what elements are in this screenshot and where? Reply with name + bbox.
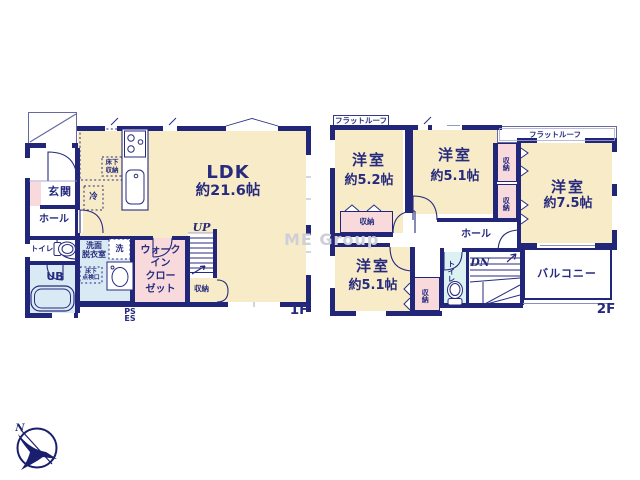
- wall: [440, 303, 523, 308]
- wall: [437, 218, 497, 222]
- toilet2-label: トイレ: [446, 255, 455, 287]
- wall: [25, 236, 80, 240]
- wall: [25, 261, 78, 265]
- wall: [517, 143, 521, 248]
- closet-a-label: 収納: [350, 218, 384, 227]
- wall: [440, 248, 444, 305]
- wall: [40, 205, 78, 209]
- wall: [330, 311, 442, 316]
- balcony-label: バルコニー: [532, 268, 602, 281]
- floor1-label: 1F: [286, 303, 312, 319]
- window: [25, 158, 30, 178]
- closet-c-label: 収納: [502, 192, 510, 216]
- bedroom75-name: 洋室: [544, 179, 592, 197]
- wall: [410, 247, 415, 311]
- bedroom51a-size: 約5.1帖: [422, 169, 488, 184]
- hatch-line2: 点検口: [80, 275, 102, 282]
- wic-line4: ゼット: [136, 283, 185, 296]
- window: [226, 126, 278, 131]
- window: [228, 302, 280, 307]
- window: [612, 196, 617, 230]
- wic-label: ウォーク イン クロー ゼット: [136, 244, 185, 296]
- vent-window: [105, 126, 117, 131]
- window: [330, 256, 335, 288]
- bedroom51a-name: 洋室: [424, 147, 486, 165]
- ufs-line2: 収納: [103, 167, 121, 175]
- wic-line3: クロー: [136, 270, 185, 283]
- bedroom51b-size: 約5.1帖: [342, 278, 404, 293]
- wall: [520, 248, 524, 305]
- ldk-size: 約21.6帖: [178, 183, 278, 200]
- wall: [78, 236, 135, 240]
- porch: [28, 112, 77, 144]
- washroom-label: 洗面 脱衣室: [79, 241, 109, 260]
- ub-label: UB: [40, 271, 70, 284]
- balcony-door: [537, 243, 595, 248]
- washroom-line2: 脱衣室: [79, 250, 109, 259]
- entrance-opening: [46, 143, 72, 148]
- bedroom52-name: 洋室: [340, 152, 398, 170]
- underfloor-storage-label: 床下 収納: [103, 159, 121, 174]
- fridge-label: 冷: [85, 192, 102, 202]
- es-label: ES: [122, 314, 138, 323]
- bedroom75-size: 約7.5帖: [536, 196, 600, 211]
- flat-roof-label-2: フラットルーフ: [528, 131, 582, 140]
- wall: [130, 238, 135, 302]
- vent-window: [418, 125, 428, 130]
- stairs-down-label: DN: [468, 257, 492, 270]
- genkan-label: 玄関: [42, 186, 78, 199]
- door-opening: [78, 210, 83, 233]
- wall: [405, 130, 413, 213]
- compass-north-label: N: [13, 423, 27, 435]
- watermark: ME Group: [284, 230, 379, 249]
- bedroom52-size: 約5.2帖: [336, 173, 402, 188]
- wall: [133, 236, 153, 240]
- hall2-label: ホール: [448, 229, 504, 241]
- wall: [462, 248, 520, 252]
- wall: [213, 229, 217, 278]
- window: [52, 313, 74, 318]
- flat-roof-label-1: フラットルーフ: [334, 117, 388, 126]
- closet-d-label: 収納: [421, 284, 429, 308]
- window: [306, 155, 311, 225]
- floor-plan: 玄関 ホール トイレ UB 洗面 脱衣室 洗 床下 点検口 ウォーク イン クロ…: [0, 0, 640, 480]
- stairs-up-label: UP: [188, 222, 215, 235]
- toilet1-label: トイレ: [29, 245, 55, 254]
- floor2-label: 2F: [592, 302, 620, 318]
- window: [356, 311, 386, 316]
- window: [612, 152, 617, 184]
- laundry-label: 洗: [111, 244, 128, 253]
- hall1-label: ホール: [31, 214, 77, 226]
- window: [432, 125, 462, 130]
- wic-line2: イン: [136, 257, 185, 270]
- wall: [130, 302, 311, 307]
- storage1-label: 収納: [189, 285, 214, 294]
- closet-b-label: 収納: [502, 152, 510, 176]
- window: [330, 140, 335, 168]
- ldk-name: LDK: [178, 162, 278, 183]
- stairs1-floor: [188, 233, 215, 278]
- bedroom51b-name: 洋室: [344, 258, 402, 276]
- wic-line1: ウォーク: [136, 244, 185, 257]
- wall: [493, 143, 497, 222]
- inspection-hatch-label: 床下 点検口: [80, 269, 102, 283]
- vent-window: [163, 126, 177, 131]
